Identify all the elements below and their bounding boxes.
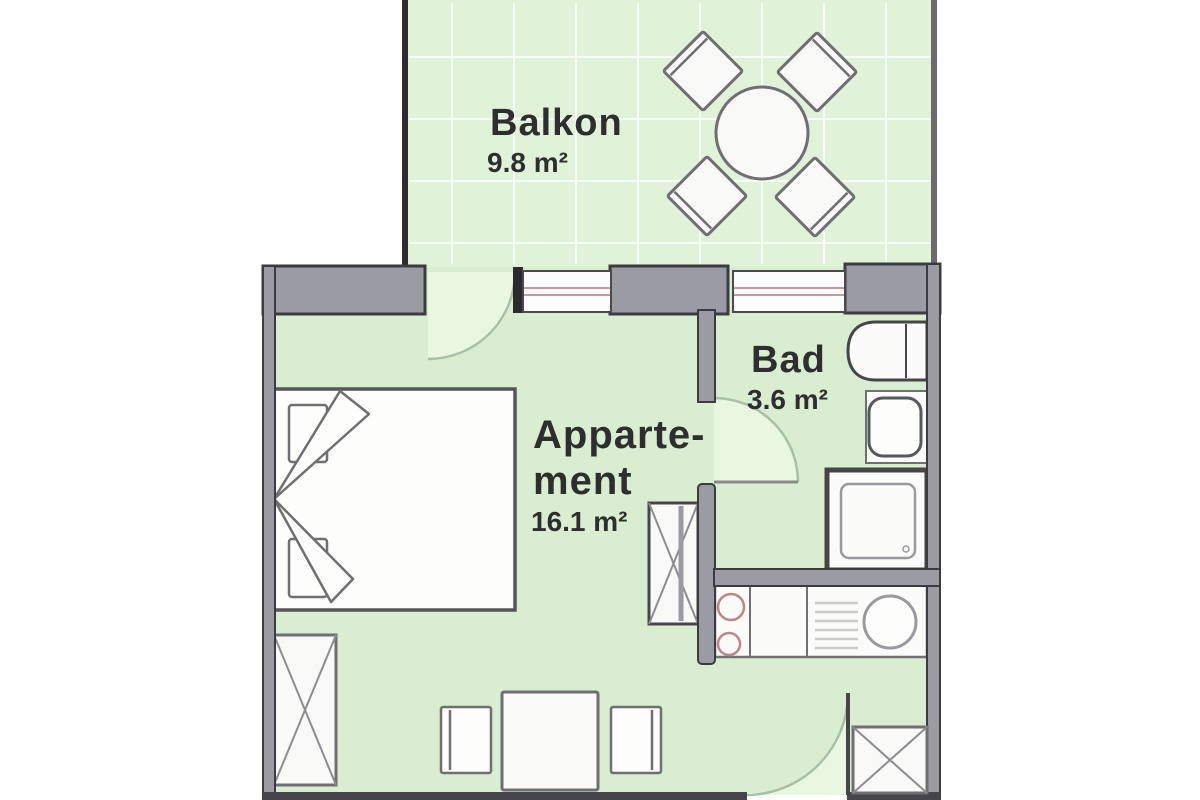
balcony-railing-left	[402, 0, 408, 268]
bathtub	[848, 322, 927, 380]
balkon-area-label: 9.8 m²	[487, 147, 568, 178]
balcony-floor	[403, 0, 937, 268]
floor-plan-svg: Balkon 9.8 m² Apparte- ment 16.1 m² Bad …	[0, 0, 1200, 800]
wall-bottom	[263, 792, 747, 800]
dining-table	[502, 692, 598, 790]
wall-bad-upper	[698, 310, 715, 402]
wall-top-middle	[610, 266, 728, 314]
round-table	[716, 87, 808, 179]
kitchenette	[715, 585, 927, 657]
appartement-label-line2: ment	[533, 459, 633, 503]
wall-right	[927, 264, 940, 800]
balkon-label: Balkon	[490, 102, 623, 144]
wall-divider	[698, 484, 715, 664]
shower	[827, 470, 927, 570]
bad-label: Bad	[751, 339, 826, 381]
window-frame-stub	[513, 267, 523, 313]
window-1	[523, 271, 611, 312]
wall-top-left	[263, 266, 425, 314]
entry-cabinet	[853, 727, 927, 793]
balcony-railing-right	[931, 0, 937, 266]
appartement-label-line1: Apparte-	[533, 413, 705, 457]
dining-chair-left	[441, 707, 491, 773]
bad-area-label: 3.6 m²	[747, 384, 828, 415]
appartement-area-label: 16.1 m²	[531, 506, 628, 537]
wardrobe	[274, 635, 336, 785]
cabinet	[649, 503, 698, 624]
wall-top-right	[845, 264, 940, 313]
wall-bad-bottom	[714, 569, 940, 586]
wall-left	[263, 266, 275, 800]
floor-plan-page: Balkon 9.8 m² Apparte- ment 16.1 m² Bad …	[0, 0, 1200, 800]
window-2	[733, 271, 845, 312]
bed	[274, 389, 515, 610]
washbasin	[866, 391, 927, 463]
kitchen-sink	[864, 596, 916, 648]
balcony	[402, 0, 937, 268]
dining-chair-right	[611, 707, 661, 773]
